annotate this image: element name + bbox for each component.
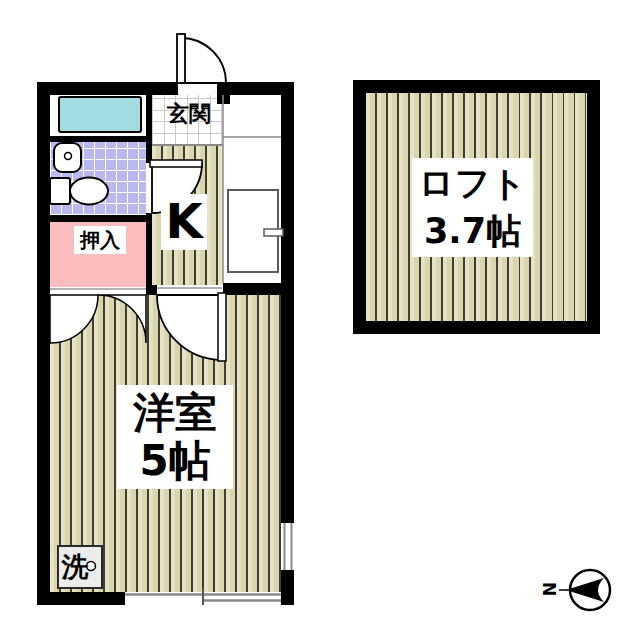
loft-size: 3.7帖 <box>424 208 521 255</box>
laundry-label: 洗 <box>60 551 90 583</box>
entrance-label-text: 玄関 <box>167 101 211 126</box>
loft-label: ロフト3.7帖 <box>412 158 533 257</box>
kitchen-label-text: K <box>165 194 202 249</box>
bottom-window-icon <box>125 588 281 605</box>
compass-north-label: N <box>540 582 560 596</box>
closet-label: 押入 <box>74 226 126 254</box>
toilet-icon <box>50 178 108 205</box>
sink-icon <box>54 143 81 172</box>
compass-icon: N <box>540 570 610 610</box>
symbol-overlay: N <box>0 0 640 640</box>
entrance-label: 玄関 <box>159 100 219 128</box>
entrance-door-icon <box>177 34 226 83</box>
western-room-size: 5帖 <box>139 437 210 485</box>
kitchen-door-icon <box>157 293 226 361</box>
western-room-label: 洋室5帖 <box>117 385 233 489</box>
refrigerator-icon <box>228 190 283 272</box>
loft-name: ロフト <box>419 160 526 207</box>
floor-plan-canvas: N 玄関 K 押入 洋室5帖 ロフト3.7帖 洗 <box>0 0 640 640</box>
laundry-label-text: 洗 <box>62 551 89 582</box>
western-room-name: 洋室 <box>133 389 217 437</box>
kitchen-label: K <box>161 194 207 250</box>
closet-label-text: 押入 <box>80 229 120 252</box>
right-window-icon <box>285 523 292 570</box>
closet-doors-icon <box>50 295 146 343</box>
